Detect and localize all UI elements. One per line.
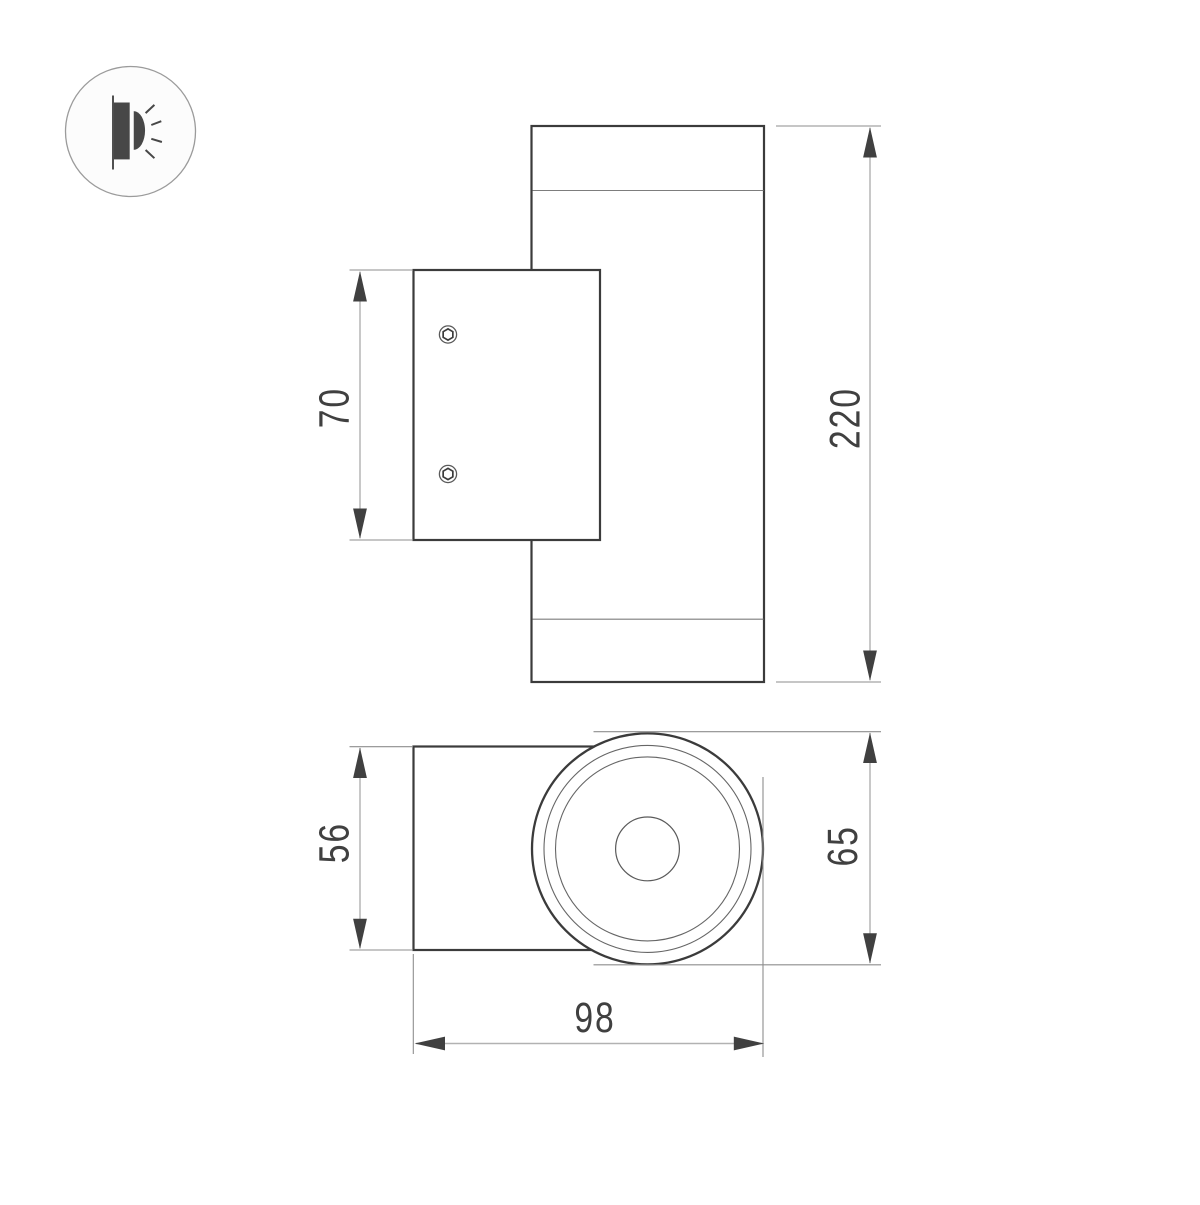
svg-text:56: 56 xyxy=(311,822,359,863)
svg-text:65: 65 xyxy=(819,825,867,866)
svg-text:98: 98 xyxy=(574,994,615,1042)
svg-text:70: 70 xyxy=(311,387,359,428)
svg-text:220: 220 xyxy=(822,387,870,449)
